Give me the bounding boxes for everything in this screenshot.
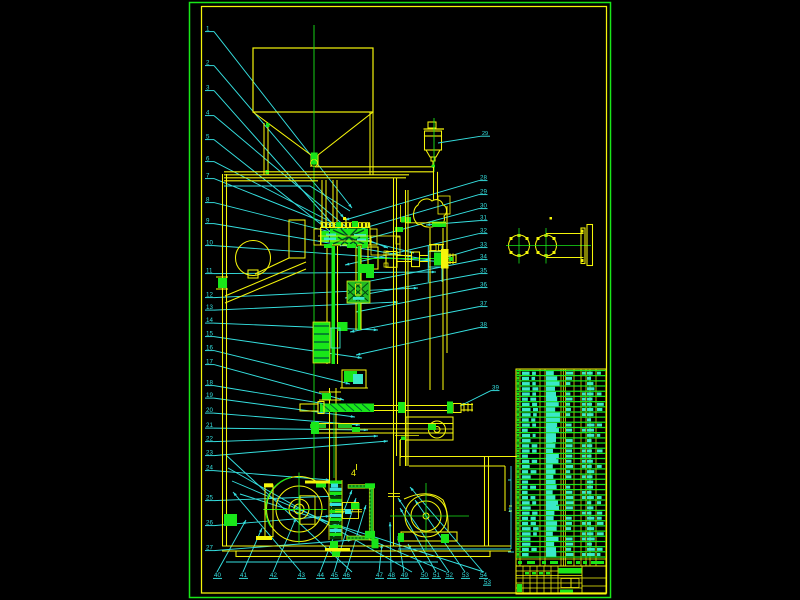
svg-text:4: 4 — [351, 468, 356, 478]
